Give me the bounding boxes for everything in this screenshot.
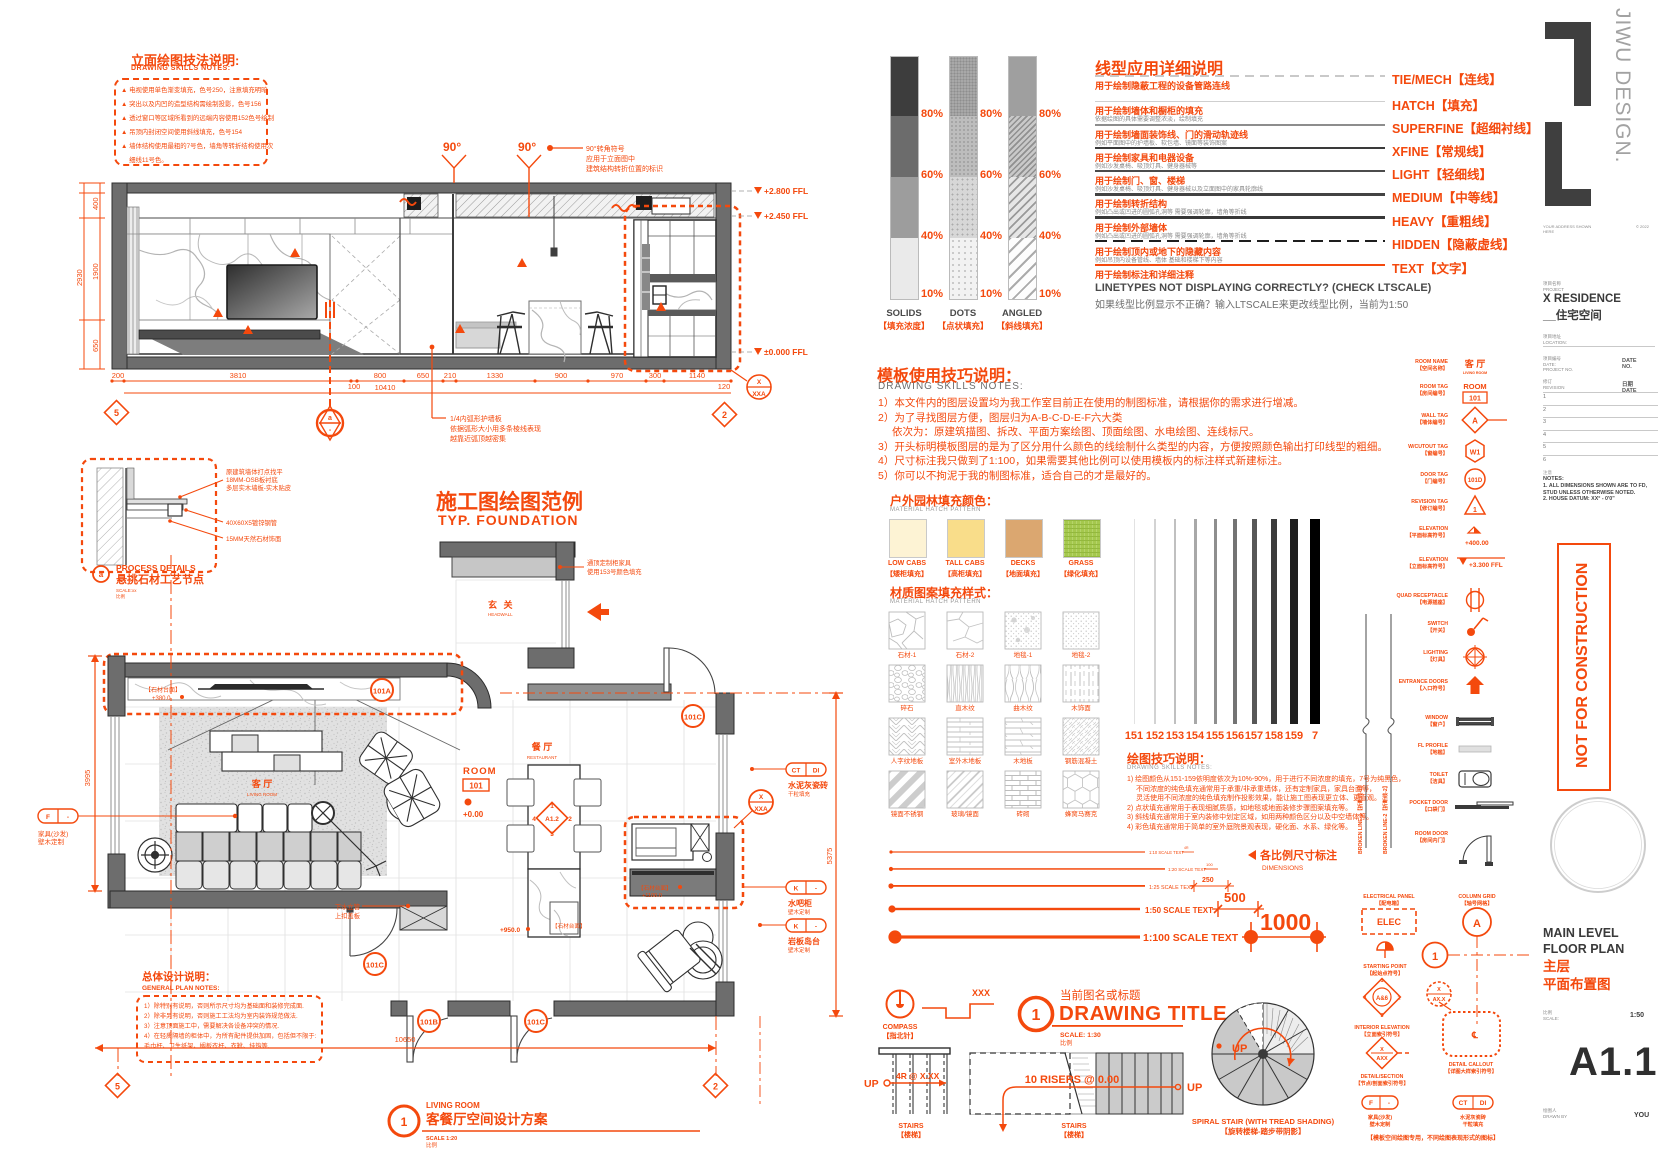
svg-text:CT: CT <box>792 768 801 775</box>
svg-text:-: - <box>815 886 817 893</box>
svg-text:ROOM: ROOM <box>463 766 497 777</box>
svg-text:90°: 90° <box>518 140 536 154</box>
svg-text:3: 3 <box>1380 1013 1383 1019</box>
svg-text:ELEVATION: ELEVATION <box>1419 557 1448 563</box>
svg-text:101D: 101D <box>1468 478 1483 484</box>
svg-text:3810: 3810 <box>230 371 247 380</box>
svg-text:UP: UP <box>864 1078 879 1090</box>
svg-text:DI: DI <box>813 768 820 775</box>
svg-text:300: 300 <box>649 371 662 380</box>
svg-text:XXX: XXX <box>972 988 990 998</box>
svg-text:使用153号颜色填充: 使用153号颜色填充 <box>587 567 642 576</box>
svg-text:4R: 4R <box>1184 846 1189 850</box>
svg-text:【详图大样索引符号】: 【详图大样索引符号】 <box>1445 1067 1497 1075</box>
svg-text:+2.800 FFL: +2.800 FFL <box>764 186 808 196</box>
svg-text:4: 4 <box>532 816 536 823</box>
svg-text:K: K <box>794 886 799 893</box>
svg-text:通顶定制柜家具: 通顶定制柜家具 <box>587 558 632 567</box>
svg-text:15MM天然石材饰面: 15MM天然石材饰面 <box>226 534 281 543</box>
svg-text:UP: UP <box>1232 1043 1247 1055</box>
svg-text:800: 800 <box>374 371 387 380</box>
svg-text:1: 1 <box>1032 1007 1041 1024</box>
svg-text:+1100.0: +1100.0 <box>642 893 662 899</box>
svg-text:90°: 90° <box>443 140 461 154</box>
svg-text:100: 100 <box>1206 862 1213 867</box>
svg-text:+0.00: +0.00 <box>463 810 484 819</box>
svg-text:REVISION TAG: REVISION TAG <box>1411 499 1448 505</box>
svg-text:1:25 SCALE TEXT: 1:25 SCALE TEXT <box>1149 885 1195 891</box>
svg-text:DI: DI <box>1480 1100 1487 1107</box>
svg-text:【墙体编号】: 【墙体编号】 <box>1417 418 1448 426</box>
svg-text:RESTAURANT: RESTAURANT <box>527 755 557 760</box>
svg-text:壁木定制: 壁木定制 <box>38 837 65 846</box>
svg-text:5: 5 <box>114 408 119 418</box>
svg-text:+380.0: +380.0 <box>152 696 171 702</box>
svg-text:【入口符号】: 【入口符号】 <box>1417 684 1448 692</box>
svg-text:室外木地板: 室外木地板 <box>949 756 982 765</box>
svg-text:ROOM NAME: ROOM NAME <box>1415 359 1448 365</box>
svg-text:比例: 比例 <box>1060 1039 1072 1047</box>
svg-text:碎石: 碎石 <box>901 703 915 712</box>
svg-text:【门编号】: 【门编号】 <box>1422 477 1448 485</box>
svg-text:±0.000 FFL: ±0.000 FFL <box>764 347 808 357</box>
svg-text:水吧柜: 水吧柜 <box>787 898 812 908</box>
svg-text:【楼梯】: 【楼梯】 <box>1060 1130 1088 1139</box>
svg-text:101C: 101C <box>527 1018 546 1027</box>
svg-text:4）在轻质隔墙的柜体中，为所有配件提供加固，包括但不限于:: 4）在轻质隔墙的柜体中，为所有配件提供加固，包括但不限于: <box>144 1032 317 1040</box>
svg-text:【地槛】: 【地槛】 <box>1427 748 1448 756</box>
svg-text:LIVING ROOM: LIVING ROOM <box>247 792 277 797</box>
svg-text:ELEVATION: ELEVATION <box>1419 526 1448 532</box>
svg-text:【指北针】: 【指北针】 <box>883 1031 918 1040</box>
svg-text:SCALE:xx: SCALE:xx <box>116 588 137 593</box>
svg-text:【房间内门】: 【房间内门】 <box>1417 836 1448 844</box>
svg-text:【窗户】: 【窗户】 <box>1427 720 1448 728</box>
svg-text:200: 200 <box>112 371 125 380</box>
svg-text:【开关】: 【开关】 <box>1427 626 1448 634</box>
svg-text:COMPASS: COMPASS <box>883 1024 918 1031</box>
svg-text:客餐厅空间设计方案: 客餐厅空间设计方案 <box>425 1111 548 1127</box>
svg-text:4R @ X.XX: 4R @ X.XX <box>896 1071 940 1081</box>
svg-text:家具(沙发): 家具(沙发) <box>38 829 68 838</box>
svg-text:AXX: AXX <box>1376 1056 1388 1062</box>
svg-text:悬挑石材工艺节点: 悬挑石材工艺节点 <box>115 572 204 586</box>
svg-text:1: 1 <box>1432 951 1438 963</box>
svg-text:LIVING ROOM: LIVING ROOM <box>1463 371 1487 375</box>
svg-text:2: 2 <box>713 1082 718 1092</box>
svg-text:DIMENSIONS: DIMENSIONS <box>1262 865 1304 872</box>
svg-text:1:100 SCALE TEXT: 1:100 SCALE TEXT <box>1143 932 1239 944</box>
svg-text:砖砌: 砖砌 <box>1017 809 1031 818</box>
svg-text:家具(沙发): 家具(沙发) <box>1368 1113 1392 1121</box>
svg-text:SCALE 1:20: SCALE 1:20 <box>426 1136 457 1142</box>
svg-text:壁木定制: 壁木定制 <box>788 908 811 916</box>
svg-text:X: X <box>1437 987 1441 993</box>
svg-text:2: 2 <box>568 816 572 823</box>
svg-text:干粒填充: 干粒填充 <box>788 790 811 798</box>
svg-text:400: 400 <box>91 197 100 210</box>
svg-text:水泥灰瓷砖: 水泥灰瓷砖 <box>787 780 828 790</box>
svg-text:岩板岛台: 岩板岛台 <box>787 936 820 946</box>
svg-text:1: 1 <box>1380 978 1383 984</box>
svg-text:直木纹: 直木纹 <box>955 703 975 712</box>
svg-text:210: 210 <box>444 371 457 380</box>
svg-text:客 厅: 客 厅 <box>251 778 273 789</box>
svg-text:BROKEN LINE-1【折断线-1】: BROKEN LINE-1【折断线-1】 <box>1356 783 1364 854</box>
svg-text:101: 101 <box>469 782 483 791</box>
svg-text:100: 100 <box>348 382 361 391</box>
svg-text:QUAD RECEPTACLE: QUAD RECEPTACLE <box>1397 593 1449 599</box>
svg-text:XXA: XXA <box>752 391 766 398</box>
svg-text:10650: 10650 <box>395 1035 416 1044</box>
svg-text:500: 500 <box>1224 890 1246 905</box>
svg-text:UP: UP <box>1187 1082 1202 1094</box>
svg-text:3995: 3995 <box>83 770 92 787</box>
svg-text:650: 650 <box>417 371 430 380</box>
svg-text:下水立管: 下水立管 <box>335 902 360 911</box>
svg-text:a: a <box>99 570 104 579</box>
svg-text:1140: 1140 <box>689 371 705 380</box>
svg-text:【立面标高符号】: 【立面标高符号】 <box>1406 562 1448 570</box>
svg-text:【轴号网格】: 【轴号网格】 <box>1461 899 1492 907</box>
svg-text:XXA: XXA <box>754 806 768 813</box>
svg-text:壁木定制: 壁木定制 <box>1370 1120 1391 1128</box>
svg-text:【房间编号】: 【房间编号】 <box>1417 389 1448 397</box>
svg-text:地毯-1: 地毯-1 <box>1014 650 1033 659</box>
svg-text:木饰面: 木饰面 <box>1071 703 1091 712</box>
svg-text:X: X <box>757 379 762 386</box>
svg-text:建筑结构转折位置的标识: 建筑结构转折位置的标识 <box>586 164 663 173</box>
svg-text:STAIRS: STAIRS <box>898 1123 923 1130</box>
svg-text:STAIRS: STAIRS <box>1061 1123 1086 1130</box>
svg-text:10 RISERS @ 0.00: 10 RISERS @ 0.00 <box>1025 1074 1120 1086</box>
svg-text:X: X <box>759 794 764 801</box>
svg-text:蜂窝马赛克: 蜂窝马赛克 <box>1065 809 1098 818</box>
svg-text:90°转角符号: 90°转角符号 <box>586 144 625 153</box>
svg-text:5375: 5375 <box>825 848 834 865</box>
svg-text:镜面不锈钢: 镜面不锈钢 <box>891 809 924 818</box>
svg-text:1: 1 <box>550 803 554 810</box>
svg-text:壁木定制: 壁木定制 <box>788 946 811 954</box>
svg-text:钢筋混凝土: 钢筋混凝土 <box>1065 756 1098 765</box>
svg-text:PROCESS DETAILS: PROCESS DETAILS <box>116 563 196 573</box>
svg-text:2930: 2930 <box>75 269 84 286</box>
svg-text:HEADWALL: HEADWALL <box>488 612 513 617</box>
svg-text:1: 1 <box>401 1115 408 1129</box>
svg-text:WALL TAG: WALL TAG <box>1421 413 1448 419</box>
svg-text:-: - <box>67 814 69 821</box>
svg-text:【配电箱】: 【配电箱】 <box>1376 899 1402 907</box>
svg-text:石材-1: 石材-1 <box>898 650 917 659</box>
svg-text:各比例尺寸标注: 各比例尺寸标注 <box>1259 848 1337 862</box>
svg-text:2: 2 <box>1397 996 1400 1002</box>
svg-text:+2.450 FFL: +2.450 FFL <box>764 211 808 221</box>
svg-text:101A: 101A <box>373 687 392 696</box>
svg-text:玄 关: 玄 关 <box>488 599 515 610</box>
svg-text:CT: CT <box>1459 1100 1468 1107</box>
svg-text:120: 120 <box>718 382 731 391</box>
svg-text:【电源插座】: 【电源插座】 <box>1417 598 1448 606</box>
svg-text:人字纹地板: 人字纹地板 <box>891 756 924 765</box>
svg-text:STARTING POINT: STARTING POINT <box>1363 964 1407 970</box>
svg-text:K: K <box>794 924 799 931</box>
svg-text:【模板空间绘图专用，不同绘图表现形式的图标】: 【模板空间绘图专用，不同绘图表现形式的图标】 <box>1367 1134 1499 1142</box>
svg-text:【石材台面】: 【石材台面】 <box>638 884 672 892</box>
svg-text:10410: 10410 <box>375 383 396 392</box>
svg-text:比例: 比例 <box>426 1141 438 1149</box>
svg-text:101B: 101B <box>420 1018 439 1027</box>
svg-text:101C: 101C <box>366 961 385 970</box>
svg-text:A: A <box>1473 918 1481 930</box>
svg-text:250: 250 <box>1202 877 1214 884</box>
svg-text:a: a <box>328 415 332 422</box>
svg-text:【空间名称】: 【空间名称】 <box>1417 364 1448 372</box>
svg-text:ENTRANCE DOORS: ENTRANCE DOORS <box>1399 679 1449 685</box>
svg-text:【口袋门】: 【口袋门】 <box>1422 805 1448 813</box>
svg-text:900: 900 <box>555 371 568 380</box>
svg-text:X: X <box>1380 1047 1384 1053</box>
svg-text:DETAIL CALLOUT: DETAIL CALLOUT <box>1449 1062 1494 1068</box>
svg-text:+3.300 FFL: +3.300 FFL <box>1469 562 1503 569</box>
svg-text:3: 3 <box>550 831 554 838</box>
svg-text:应用于立面图中: 应用于立面图中 <box>586 154 635 163</box>
svg-text:【石材台面】: 【石材台面】 <box>145 686 181 694</box>
svg-text:依据弧形大小用多条棱线表现: 依据弧形大小用多条棱线表现 <box>450 424 541 433</box>
svg-text:GENERAL PLAN NOTES:: GENERAL PLAN NOTES: <box>142 985 220 992</box>
svg-text:DOOR TAG: DOOR TAG <box>1420 472 1448 478</box>
svg-text:DRAWING TITLE: DRAWING TITLE <box>1059 1002 1227 1025</box>
svg-text:【窗编号】: 【窗编号】 <box>1422 449 1448 457</box>
svg-text:1:20 SCALE TEXT: 1:20 SCALE TEXT <box>1168 867 1206 872</box>
svg-text:【平面标高符号】: 【平面标高符号】 <box>1406 531 1448 539</box>
svg-text:ROOM: ROOM <box>1463 382 1486 391</box>
svg-text:W1: W1 <box>1470 450 1481 457</box>
svg-text:F: F <box>1369 1100 1373 1107</box>
svg-text:餐 厅: 餐 厅 <box>531 741 553 752</box>
svg-text:TOILET: TOILET <box>1430 772 1449 778</box>
svg-text:WINDOW: WINDOW <box>1425 715 1448 721</box>
svg-text:W/CUTOUT TAG: W/CUTOUT TAG <box>1408 444 1448 450</box>
svg-text:木地板: 木地板 <box>1013 756 1033 765</box>
svg-text:F: F <box>46 814 50 821</box>
svg-text:毛巾杆、卫生纸架、搁板衣杆、衣靴、挂钩等.: 毛巾杆、卫生纸架、搁板衣杆、衣靴、挂钩等. <box>144 1042 270 1050</box>
svg-text:BROKEN LINE-2【折断线-2】: BROKEN LINE-2【折断线-2】 <box>1381 783 1389 854</box>
svg-text:℄: ℄ <box>1471 1030 1478 1040</box>
svg-text:COLUMN GRID: COLUMN GRID <box>1458 894 1495 900</box>
svg-text:DETAIL/SECTION: DETAIL/SECTION <box>1361 1074 1404 1080</box>
svg-text:POCKET DOOR: POCKET DOOR <box>1409 800 1448 806</box>
svg-text:LIGHTING: LIGHTING <box>1423 650 1448 656</box>
svg-text:101: 101 <box>1469 396 1481 403</box>
svg-text:1900: 1900 <box>91 263 100 280</box>
svg-text:多层实木墙板-实木贴皮: 多层实木墙板-实木贴皮 <box>226 483 292 492</box>
svg-text:总体设计说明：: 总体设计说明： <box>142 970 216 983</box>
svg-text:A&6: A&6 <box>1376 996 1389 1002</box>
svg-text:1000: 1000 <box>1260 909 1311 935</box>
svg-text:1:10 SCALE TEXT: 1:10 SCALE TEXT <box>1149 850 1184 855</box>
svg-text:ROOM TAG: ROOM TAG <box>1420 384 1448 390</box>
svg-text:曲木纹: 曲木纹 <box>1013 703 1033 712</box>
svg-text:+400.00: +400.00 <box>1465 540 1489 547</box>
svg-text:SWITCH: SWITCH <box>1428 621 1449 627</box>
svg-text:2: 2 <box>722 410 727 420</box>
svg-text:ELECTRICAL PANEL: ELECTRICAL PANEL <box>1363 894 1415 900</box>
svg-text:5: 5 <box>115 1082 120 1092</box>
svg-text:ELEC: ELEC <box>1377 917 1402 927</box>
svg-text:SPIRAL STAIR (WITH TREAD SHADI: SPIRAL STAIR (WITH TREAD SHADING) <box>1192 1117 1335 1126</box>
svg-text:1）除特别有说明，否则所示尺寸均为基础面和装修完成面.: 1）除特别有说明，否则所示尺寸均为基础面和装修完成面. <box>144 1002 304 1010</box>
svg-text:【节点/剖面索引符号】: 【节点/剖面索引符号】 <box>1355 1079 1408 1087</box>
svg-text:40X60X5镀锌钢管: 40X60X5镀锌钢管 <box>226 518 277 527</box>
svg-text:上扣盖板: 上扣盖板 <box>335 911 361 920</box>
svg-text:1/4内弧形护墙板: 1/4内弧形护墙板 <box>450 414 502 423</box>
svg-text:当前图名或标题: 当前图名或标题 <box>1060 988 1141 1002</box>
svg-text:地毯-2: 地毯-2 <box>1072 650 1091 659</box>
svg-text:水泥灰瓷砖: 水泥灰瓷砖 <box>1460 1113 1487 1121</box>
svg-text:101C: 101C <box>684 713 703 722</box>
svg-text:3）注意顶面施工中，需要解决各设备冲突的情况.: 3）注意顶面施工中，需要解决各设备冲突的情况. <box>144 1022 279 1030</box>
svg-text:-: - <box>1388 1100 1390 1107</box>
svg-text:+950.0: +950.0 <box>500 927 520 934</box>
svg-text:INTERIOR ELEVATION: INTERIOR ELEVATION <box>1354 1025 1409 1031</box>
svg-text:客 厅: 客 厅 <box>1464 358 1486 369</box>
svg-text:【洁具】: 【洁具】 <box>1427 777 1448 785</box>
svg-text:【起始点符号】: 【起始点符号】 <box>1367 969 1403 977</box>
svg-text:A1.2: A1.2 <box>545 816 559 823</box>
svg-text:【修订编号】: 【修订编号】 <box>1417 504 1448 512</box>
svg-text:1:50 SCALE TEXT: 1:50 SCALE TEXT <box>1145 906 1213 915</box>
svg-text:970: 970 <box>611 371 624 380</box>
svg-text:【楼梯】: 【楼梯】 <box>897 1130 925 1139</box>
svg-text:玻璃/镜面: 玻璃/镜面 <box>951 809 979 818</box>
svg-text:A: A <box>1472 417 1478 426</box>
svg-text:原建筑墙体打点找平: 原建筑墙体打点找平 <box>226 467 283 476</box>
svg-text:650: 650 <box>91 339 100 352</box>
svg-text:比例: 比例 <box>116 593 125 600</box>
svg-text:FL PROFILE: FL PROFILE <box>1418 743 1449 749</box>
svg-text:-: - <box>329 427 332 434</box>
svg-text:【灯具】: 【灯具】 <box>1427 655 1448 663</box>
svg-text:SCALE: 1:30: SCALE: 1:30 <box>1060 1032 1101 1039</box>
svg-text:【石材台面】: 【石材台面】 <box>552 922 586 930</box>
svg-text:2）除非另有说明，否则施工工法均为室内装饰规范做法.: 2）除非另有说明，否则施工工法均为室内装饰规范做法. <box>144 1012 298 1020</box>
svg-text:【旋转楼梯-踏步带阴影】: 【旋转楼梯-踏步带阴影】 <box>1221 1126 1306 1136</box>
svg-text:ROOM DOOR: ROOM DOOR <box>1415 831 1448 837</box>
svg-text:1330: 1330 <box>487 371 504 380</box>
svg-text:干粒填充: 干粒填充 <box>1463 1120 1485 1128</box>
svg-text:18MM-OSB板衬底: 18MM-OSB板衬底 <box>226 475 278 484</box>
svg-text:1: 1 <box>1473 507 1477 514</box>
svg-text:-: - <box>815 924 817 931</box>
svg-text:LIVING ROOM: LIVING ROOM <box>426 1101 480 1110</box>
svg-text:石材-2: 石材-2 <box>956 650 975 659</box>
